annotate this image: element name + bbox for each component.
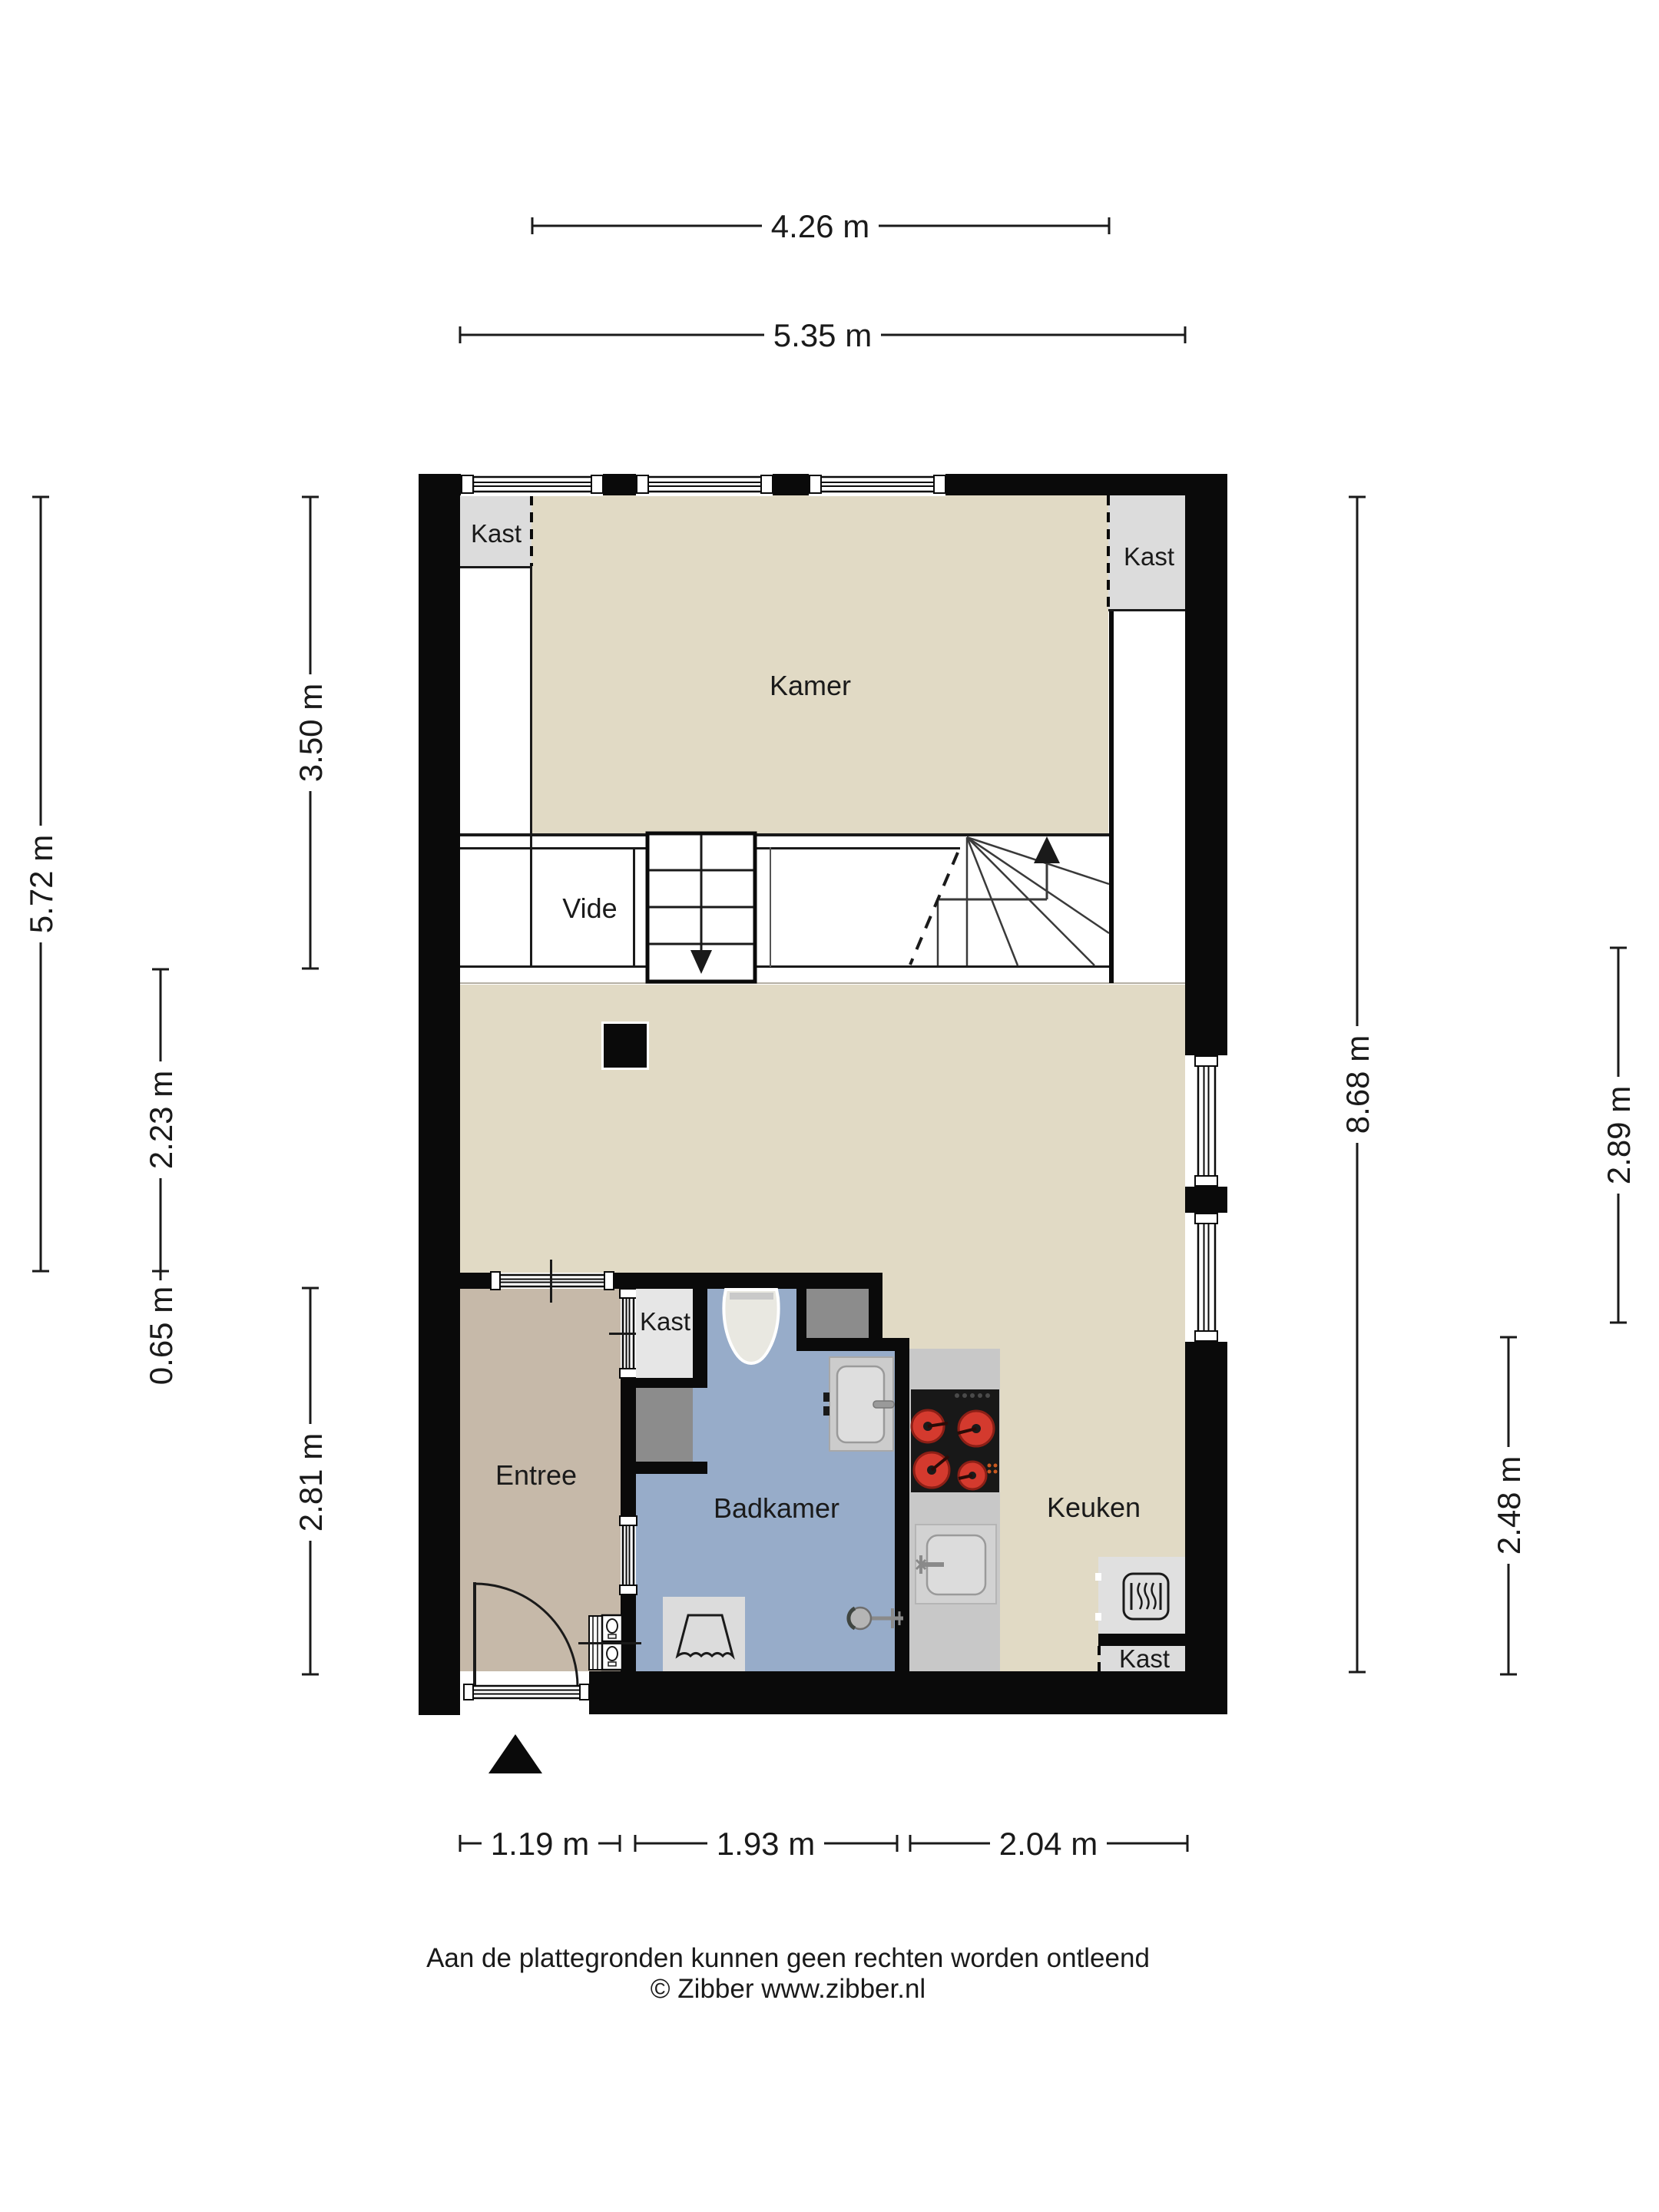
svg-text:5.35 m: 5.35 m <box>773 317 872 353</box>
svg-text:2.23 m: 2.23 m <box>143 1071 179 1169</box>
svg-text:Kamer: Kamer <box>770 670 851 701</box>
svg-text:© Zibber www.zibber.nl: © Zibber www.zibber.nl <box>651 1974 926 2004</box>
svg-text:0.65 m: 0.65 m <box>143 1286 179 1385</box>
svg-text:Kast: Kast <box>640 1307 690 1336</box>
svg-text:Badkamer: Badkamer <box>714 1492 839 1524</box>
svg-text:3.50 m: 3.50 m <box>293 684 329 782</box>
svg-text:Aan de plattegronden kunnen ge: Aan de plattegronden kunnen geen rechten… <box>426 1943 1150 1973</box>
svg-text:1.93 m: 1.93 m <box>717 1826 815 1862</box>
svg-text:2.04 m: 2.04 m <box>999 1826 1098 1862</box>
svg-text:Kast: Kast <box>471 519 522 548</box>
svg-text:8.68 m: 8.68 m <box>1339 1035 1376 1134</box>
svg-text:5.72 m: 5.72 m <box>23 835 59 933</box>
svg-text:Vide: Vide <box>562 892 617 924</box>
svg-text:Kast: Kast <box>1119 1644 1170 1673</box>
svg-text:4.26 m: 4.26 m <box>771 208 869 244</box>
svg-text:Keuken: Keuken <box>1047 1492 1141 1523</box>
svg-text:1.19 m: 1.19 m <box>491 1826 589 1862</box>
svg-text:2.81 m: 2.81 m <box>293 1433 329 1532</box>
svg-text:2.48 m: 2.48 m <box>1491 1456 1527 1555</box>
svg-text:Kast: Kast <box>1124 542 1174 571</box>
svg-text:2.89 m: 2.89 m <box>1601 1086 1637 1184</box>
svg-text:Entree: Entree <box>495 1459 577 1491</box>
